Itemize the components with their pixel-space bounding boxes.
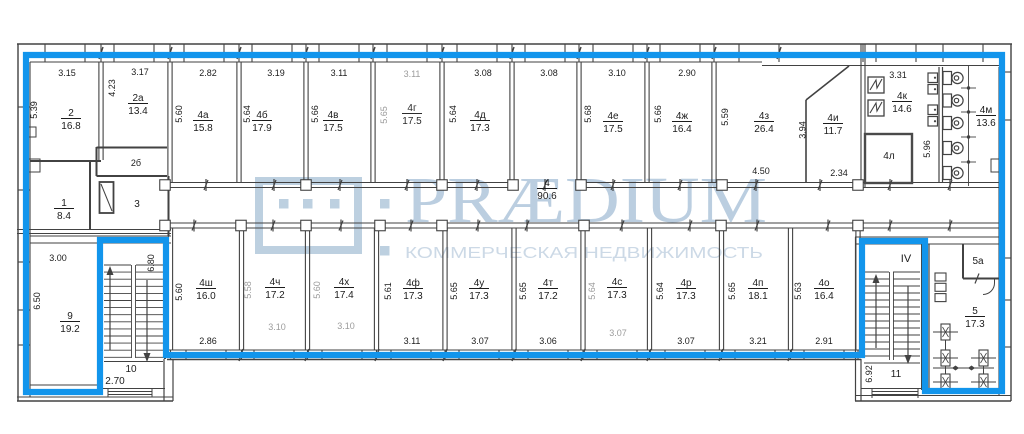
svg-text:14.6: 14.6 <box>892 104 912 115</box>
svg-text:6.92: 6.92 <box>864 365 874 383</box>
svg-text:9: 9 <box>67 311 73 322</box>
svg-text:3.06: 3.06 <box>539 336 557 346</box>
svg-text:16.0: 16.0 <box>196 291 216 302</box>
svg-text:3.94: 3.94 <box>798 121 808 139</box>
svg-text:18.1: 18.1 <box>748 291 768 302</box>
svg-text:2.34: 2.34 <box>830 168 848 178</box>
svg-text:IV: IV <box>901 253 912 265</box>
svg-text:4п: 4п <box>753 278 764 289</box>
svg-text:5.65: 5.65 <box>518 282 528 300</box>
svg-text:2: 2 <box>68 108 74 119</box>
svg-text:13.6: 13.6 <box>976 118 996 129</box>
svg-text:3.08: 3.08 <box>474 68 492 78</box>
svg-text:4: 4 <box>544 178 550 189</box>
svg-text:3: 3 <box>134 199 140 210</box>
svg-text:2.90: 2.90 <box>678 68 696 78</box>
svg-text:4а: 4а <box>197 110 209 121</box>
svg-text:3.17: 3.17 <box>131 67 149 77</box>
svg-text:4в: 4в <box>328 110 339 121</box>
svg-text:2.86: 2.86 <box>199 336 217 346</box>
svg-text:3.11: 3.11 <box>404 336 421 346</box>
svg-text:4г: 4г <box>407 103 417 114</box>
svg-text:8.4: 8.4 <box>57 211 71 222</box>
svg-text:5.64: 5.64 <box>655 282 665 300</box>
svg-text:4к: 4к <box>897 91 908 102</box>
svg-text:5.64: 5.64 <box>587 282 597 300</box>
svg-text:6.50: 6.50 <box>32 292 42 310</box>
svg-text:15.8: 15.8 <box>193 123 213 134</box>
svg-text:16.4: 16.4 <box>814 291 834 302</box>
svg-text:6.80: 6.80 <box>146 254 156 272</box>
svg-text:17.3: 17.3 <box>469 291 489 302</box>
svg-text:КОММЕРЧЕСКАЯ НЕДВИЖИМОСТЬ: КОММЕРЧЕСКАЯ НЕДВИЖИМОСТЬ <box>405 245 763 262</box>
svg-text:16.8: 16.8 <box>61 121 81 132</box>
svg-text:17.3: 17.3 <box>676 291 696 302</box>
svg-text:4ф: 4ф <box>406 277 420 289</box>
svg-text:3.19: 3.19 <box>267 68 285 78</box>
svg-text:17.3: 17.3 <box>965 319 985 330</box>
svg-text:26.4: 26.4 <box>754 124 774 135</box>
svg-text:3.10: 3.10 <box>337 321 355 331</box>
svg-text:3.31: 3.31 <box>889 70 907 80</box>
svg-text:1: 1 <box>61 198 67 209</box>
svg-text:4т: 4т <box>543 278 554 289</box>
svg-text:4л: 4л <box>883 151 895 162</box>
svg-text:3.10: 3.10 <box>608 68 626 78</box>
svg-text:4з: 4з <box>759 111 770 122</box>
svg-text:4и: 4и <box>827 113 838 124</box>
svg-text:17.2: 17.2 <box>538 291 558 302</box>
svg-text:17.9: 17.9 <box>252 123 272 134</box>
svg-text:5.59: 5.59 <box>720 108 730 126</box>
svg-text:5.64: 5.64 <box>448 105 458 123</box>
svg-text:5.65: 5.65 <box>449 282 459 300</box>
svg-text:3.07: 3.07 <box>609 328 627 338</box>
svg-text:5.68: 5.68 <box>583 105 593 123</box>
svg-text:3.11: 3.11 <box>404 69 421 79</box>
svg-text:5.64: 5.64 <box>242 105 252 123</box>
svg-text:3.11: 3.11 <box>331 68 348 78</box>
svg-text:4е: 4е <box>607 111 619 122</box>
svg-text:5.65: 5.65 <box>727 282 737 300</box>
svg-text:17.2: 17.2 <box>265 290 285 301</box>
svg-text:3.10: 3.10 <box>268 322 286 332</box>
svg-text:5.63: 5.63 <box>793 282 803 300</box>
svg-text:13.4: 13.4 <box>128 106 148 117</box>
svg-text:5.61: 5.61 <box>383 282 393 300</box>
svg-text:3.21: 3.21 <box>749 336 767 346</box>
svg-text:4р: 4р <box>680 278 692 289</box>
svg-text:4с: 4с <box>612 277 623 288</box>
svg-text:4б: 4б <box>256 109 268 121</box>
svg-text:2б: 2б <box>131 158 141 168</box>
svg-text:3.15: 3.15 <box>58 68 76 78</box>
svg-text:3.07: 3.07 <box>677 336 695 346</box>
svg-text:4м: 4м <box>980 105 993 116</box>
svg-text:2а: 2а <box>132 93 144 104</box>
svg-text:2.70: 2.70 <box>105 376 125 387</box>
svg-text:4у: 4у <box>474 278 485 289</box>
svg-text:4о: 4о <box>818 278 830 289</box>
svg-text:5: 5 <box>972 306 978 317</box>
svg-text:5.96: 5.96 <box>922 140 932 158</box>
svg-text:17.3: 17.3 <box>470 123 490 134</box>
svg-text:5.66: 5.66 <box>653 105 663 123</box>
svg-text:4х: 4х <box>339 277 350 288</box>
svg-text:4.50: 4.50 <box>752 166 770 176</box>
svg-text:17.5: 17.5 <box>402 116 422 127</box>
svg-text:4.23: 4.23 <box>107 79 117 97</box>
svg-text:5.39: 5.39 <box>29 101 39 119</box>
svg-text:17.5: 17.5 <box>323 123 343 134</box>
svg-text:5.65: 5.65 <box>379 106 389 124</box>
svg-text:4ж: 4ж <box>676 111 689 122</box>
svg-text:17.3: 17.3 <box>403 291 423 302</box>
svg-text:3.00: 3.00 <box>49 253 67 263</box>
svg-text:5.66: 5.66 <box>310 105 320 123</box>
svg-text:17.4: 17.4 <box>334 290 354 301</box>
svg-text:17.5: 17.5 <box>603 124 623 135</box>
svg-text:19.2: 19.2 <box>60 324 80 335</box>
svg-text:4ч: 4ч <box>270 277 281 288</box>
svg-text:4д: 4д <box>474 110 486 121</box>
svg-text:5а: 5а <box>972 256 984 267</box>
svg-text:5.60: 5.60 <box>174 105 184 123</box>
svg-text:90.6: 90.6 <box>537 191 557 202</box>
svg-text:11: 11 <box>891 369 902 380</box>
svg-text:3.07: 3.07 <box>471 336 489 346</box>
svg-text:2.82: 2.82 <box>199 68 217 78</box>
svg-text:11.7: 11.7 <box>824 126 843 137</box>
svg-text:4ш: 4ш <box>199 278 213 289</box>
svg-text:16.4: 16.4 <box>672 124 692 135</box>
svg-text:2.91: 2.91 <box>815 336 833 346</box>
svg-text:5.60: 5.60 <box>174 283 184 301</box>
svg-text:10: 10 <box>125 364 137 375</box>
svg-text:5.58: 5.58 <box>243 281 253 299</box>
svg-text:3.08: 3.08 <box>540 68 558 78</box>
svg-text:5.60: 5.60 <box>312 281 322 299</box>
svg-text:17.3: 17.3 <box>607 290 627 301</box>
